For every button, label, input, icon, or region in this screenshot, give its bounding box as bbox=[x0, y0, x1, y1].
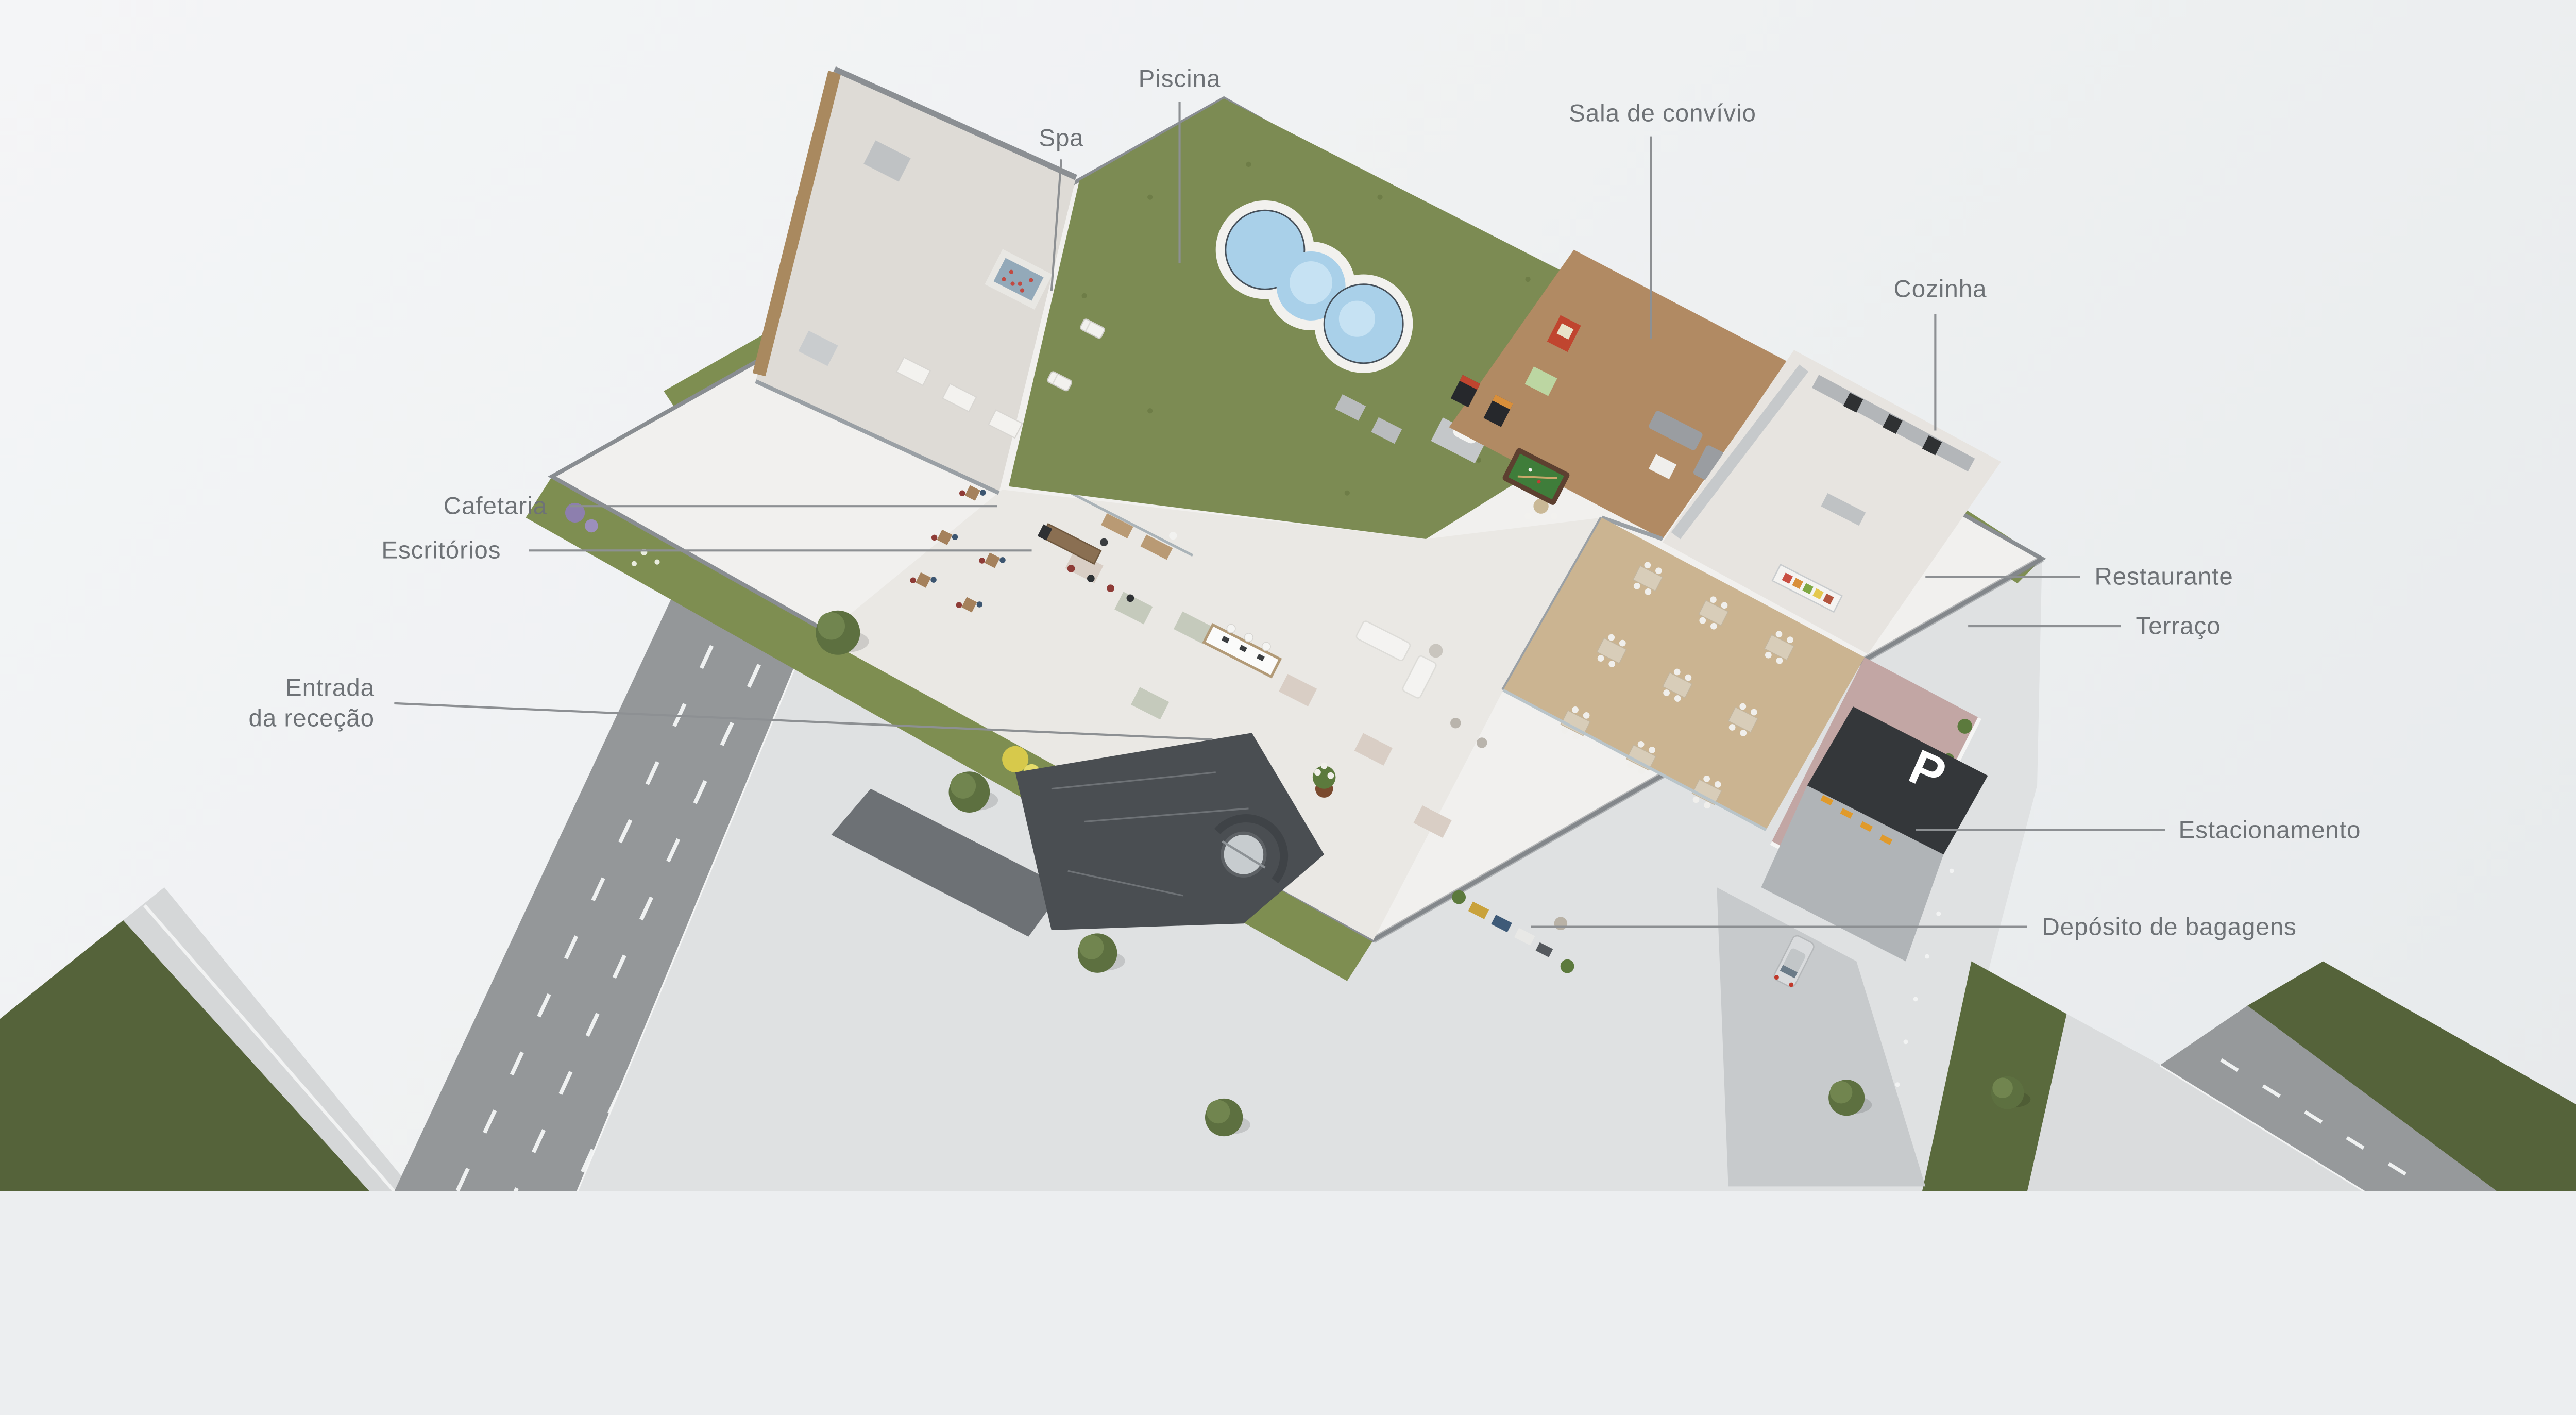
floorplan-illustration: P bbox=[0, 0, 2576, 1191]
label-cafetaria: Cafetaria bbox=[444, 491, 547, 521]
label-terraco: Terraço bbox=[2136, 611, 2221, 641]
label-escritorios: Escritórios bbox=[381, 535, 501, 566]
label-spa: Spa bbox=[1039, 123, 1083, 153]
label-estacionamento: Estacionamento bbox=[2179, 815, 2361, 845]
label-cozinha: Cozinha bbox=[1894, 274, 1987, 305]
terrace-plant bbox=[1957, 719, 1972, 734]
label-deposito-de-bagagens: Depósito de bagagens bbox=[2042, 912, 2296, 942]
label-piscina: Piscina bbox=[1139, 63, 1221, 94]
label-sala-de-convivio: Sala de convívio bbox=[1569, 98, 1756, 128]
label-restaurante: Restaurante bbox=[2095, 562, 2233, 592]
label-entrada-da-rececao: Entrada da receção bbox=[248, 672, 375, 734]
isometric-scene: P bbox=[0, 0, 2576, 1191]
